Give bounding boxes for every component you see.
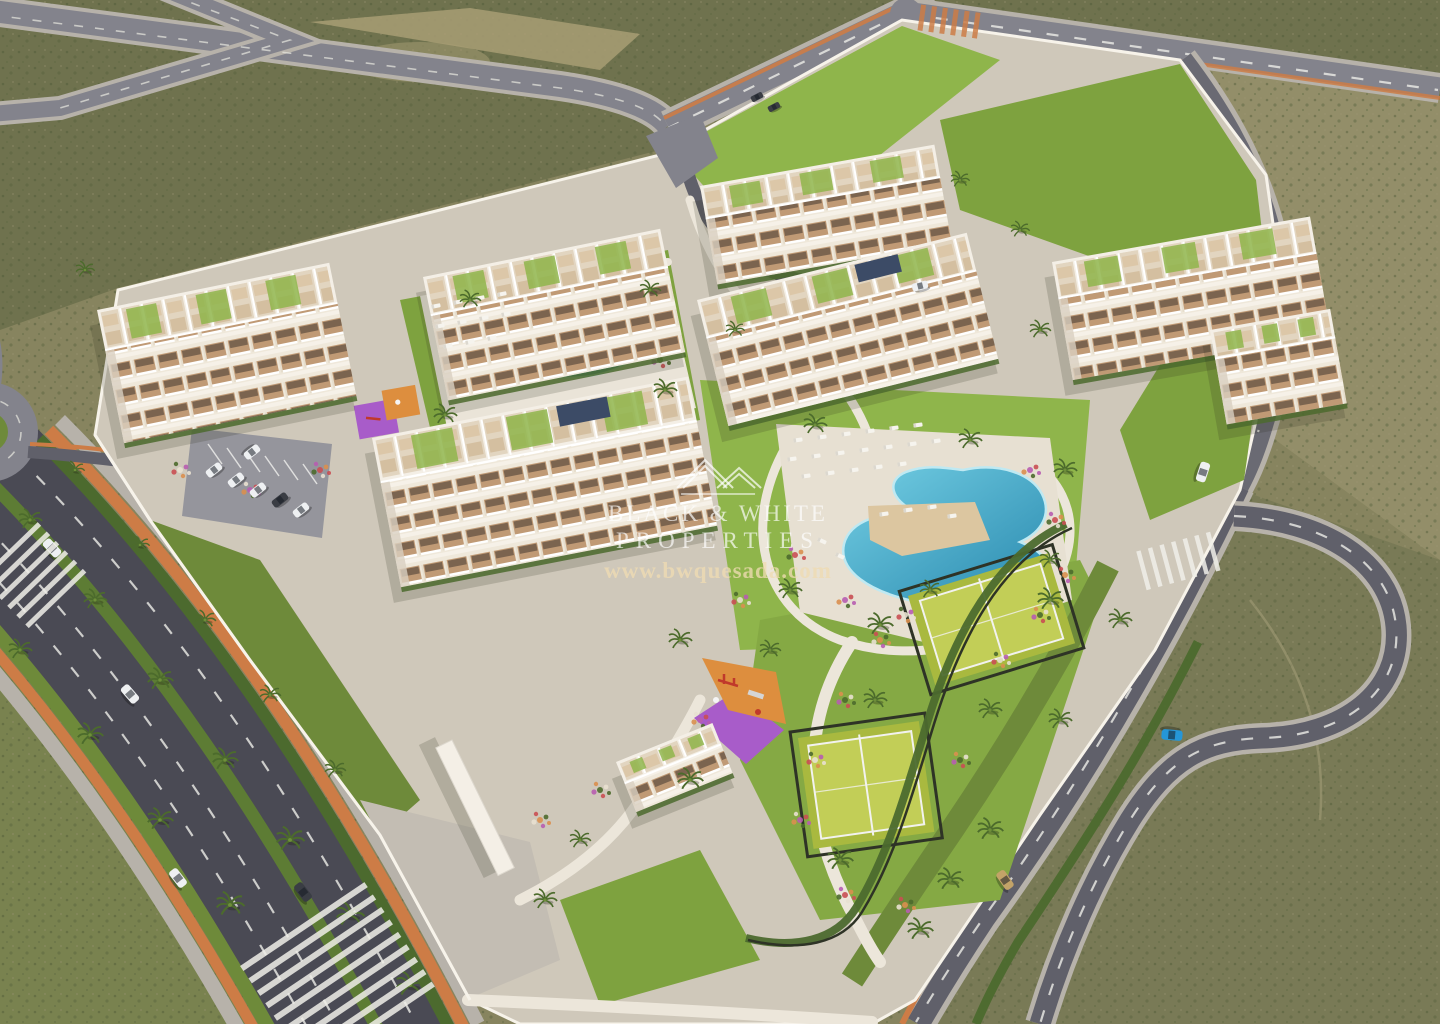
- roof-garden: [265, 275, 301, 311]
- aerial-render: [0, 0, 1440, 1024]
- roof-garden: [1225, 330, 1244, 350]
- roof-garden: [1261, 323, 1280, 343]
- roof-garden: [196, 289, 232, 325]
- roof-garden: [126, 303, 162, 339]
- apartment-building: [1200, 309, 1349, 440]
- aerial-render-page: BLACK & WHITE PROPERTIES www.bwquesada.c…: [0, 0, 1440, 1024]
- roof-garden: [1297, 317, 1316, 337]
